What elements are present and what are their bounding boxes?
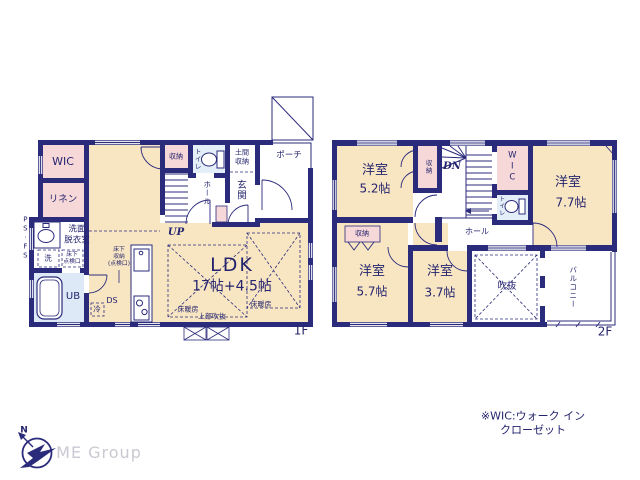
label-doma-storage: 土間 収納 [235, 148, 249, 166]
label-room37-size: 3.7帖 [424, 286, 455, 301]
room-1f-free [89, 145, 160, 232]
label-room52-name: 洋室 [362, 163, 388, 179]
vanity-icon [34, 222, 60, 248]
stairs-2f [442, 146, 492, 218]
label-ldk-size: 17帖+4.5帖 [192, 278, 272, 296]
label-ps-fs: PS·FS [21, 216, 30, 261]
label-hall-1f: ホール [202, 180, 211, 206]
label-floor-heating-left: 床暖房 [178, 306, 199, 315]
stairs-1f-treads [165, 174, 188, 222]
bathtub-icon [37, 277, 62, 319]
label-closet-2f: 収納 [355, 230, 369, 239]
label-floor1: 1F [294, 324, 309, 339]
label-stairs-up: UP [168, 227, 184, 240]
label-entrance: 玄関 [234, 180, 246, 201]
label-ds: DS [106, 296, 117, 306]
label-room37-name: 洋室 [427, 264, 453, 280]
label-washroom: 洗面 脱衣室 [64, 224, 90, 245]
label-fridge: 冷 [93, 304, 101, 313]
label-toilet-2f: トイレ [497, 196, 505, 217]
company-logo-text: ME Group [56, 443, 142, 463]
label-ldk: LDK [210, 254, 254, 278]
toilet-icon-2f [505, 199, 525, 214]
label-toilet-1f: トイレ [193, 148, 201, 171]
wic-note: ※WIC:ウォーク イン クローゼット [480, 409, 587, 437]
label-underfloor-hatch: 床下 点検口 [63, 252, 80, 266]
floorplan-drawing [0, 0, 640, 480]
label-room57-size: 5.7帖 [356, 285, 387, 300]
label-room52-size: 5.2帖 [359, 182, 390, 197]
label-hall-2f: ホール [465, 227, 489, 237]
label-linen: リネン [49, 194, 78, 206]
label-wic-1f: WIC [52, 155, 74, 169]
label-storage-1f: 収納 [169, 153, 183, 162]
label-underfloor-storage: 床下 収納 (点検口) [108, 247, 130, 269]
genkan-cabinet [216, 206, 227, 222]
compass-north-label: N [20, 425, 28, 436]
label-stair-closet: 収納 [424, 160, 432, 175]
floorplan-canvas: WIC リネン PS·FS 洗面 脱衣室 洗 床下 点検口 UB 床下 収納 (… [0, 0, 640, 480]
label-ub: UB [66, 291, 80, 304]
label-laundry: 洗 [44, 253, 52, 262]
label-porch: ポーチ [276, 151, 302, 162]
toilet-icon-1f [202, 151, 225, 168]
label-floor-heating-right: 床暖房 [251, 301, 272, 310]
porch-roof [272, 97, 313, 140]
label-stairs-dn: DN [443, 161, 461, 174]
label-floor2: 2F [598, 325, 613, 340]
kitchen-icon [131, 245, 152, 322]
label-upper-void: 上部吹抜 [198, 313, 226, 322]
label-void: 吹抜 [497, 281, 516, 293]
balcony-edge [546, 252, 615, 327]
label-balcony: バルコニー [568, 266, 577, 309]
compass-logo [18, 432, 56, 468]
label-room77-name: 洋室 [555, 175, 581, 191]
label-room77-size: 7.7帖 [555, 196, 586, 211]
upper-void-windows [184, 327, 229, 340]
label-room57-name: 洋室 [359, 264, 385, 280]
label-wic-2f: WIC [507, 151, 518, 184]
